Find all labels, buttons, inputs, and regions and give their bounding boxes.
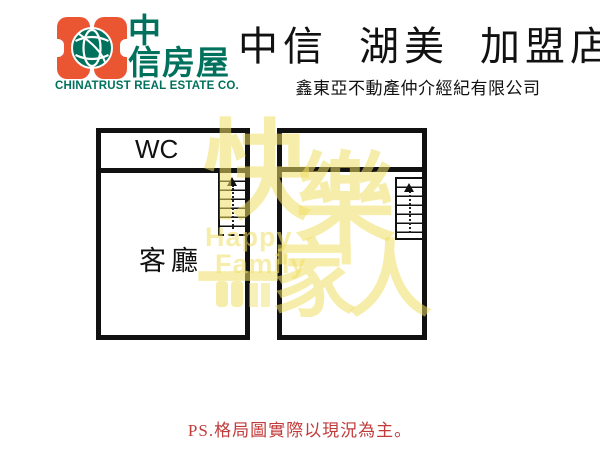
staircase-left bbox=[218, 173, 245, 236]
watermark-logo-text-bar bbox=[261, 283, 270, 307]
disclaimer-note: PS.格局圖實際以現況為主。 bbox=[0, 416, 600, 441]
stair-arrowhead-icon bbox=[404, 183, 414, 192]
room-label-wc: WC bbox=[135, 134, 178, 165]
stair-up-arrow-icon bbox=[232, 185, 234, 229]
brand-name-cn-line1: 中 bbox=[128, 15, 230, 47]
store-title: 中信 湖美 加盟店 bbox=[238, 24, 598, 70]
logo-glyph bbox=[55, 14, 129, 82]
brand-name-en: CHINATRUST REAL ESTATE CO. bbox=[55, 80, 245, 92]
stair-up-arrow-icon bbox=[409, 191, 411, 233]
staircase-right bbox=[395, 177, 422, 240]
floorplan-right bbox=[277, 128, 427, 340]
store-subtitle: 鑫東亞不動產仲介經紀有限公司 bbox=[238, 74, 598, 99]
flyer-page: 中 信房屋 CHINATRUST REAL ESTATE CO. 中信 湖美 加… bbox=[0, 0, 600, 450]
chinatrust-logo-icon bbox=[55, 14, 129, 82]
floorplan-left: WC 客廳 bbox=[96, 128, 250, 340]
room-label-living: 客廳 bbox=[139, 239, 203, 278]
brand-name-cn: 中 信房屋 bbox=[128, 15, 230, 79]
stair-arrowhead-icon bbox=[227, 177, 237, 186]
brand-name-cn-line2: 信房屋 bbox=[128, 47, 230, 79]
store-header: 中信 湖美 加盟店 鑫東亞不動產仲介經紀有限公司 bbox=[238, 24, 598, 99]
watermark-logo-text-bar bbox=[249, 283, 258, 307]
wall-divider bbox=[282, 167, 422, 172]
